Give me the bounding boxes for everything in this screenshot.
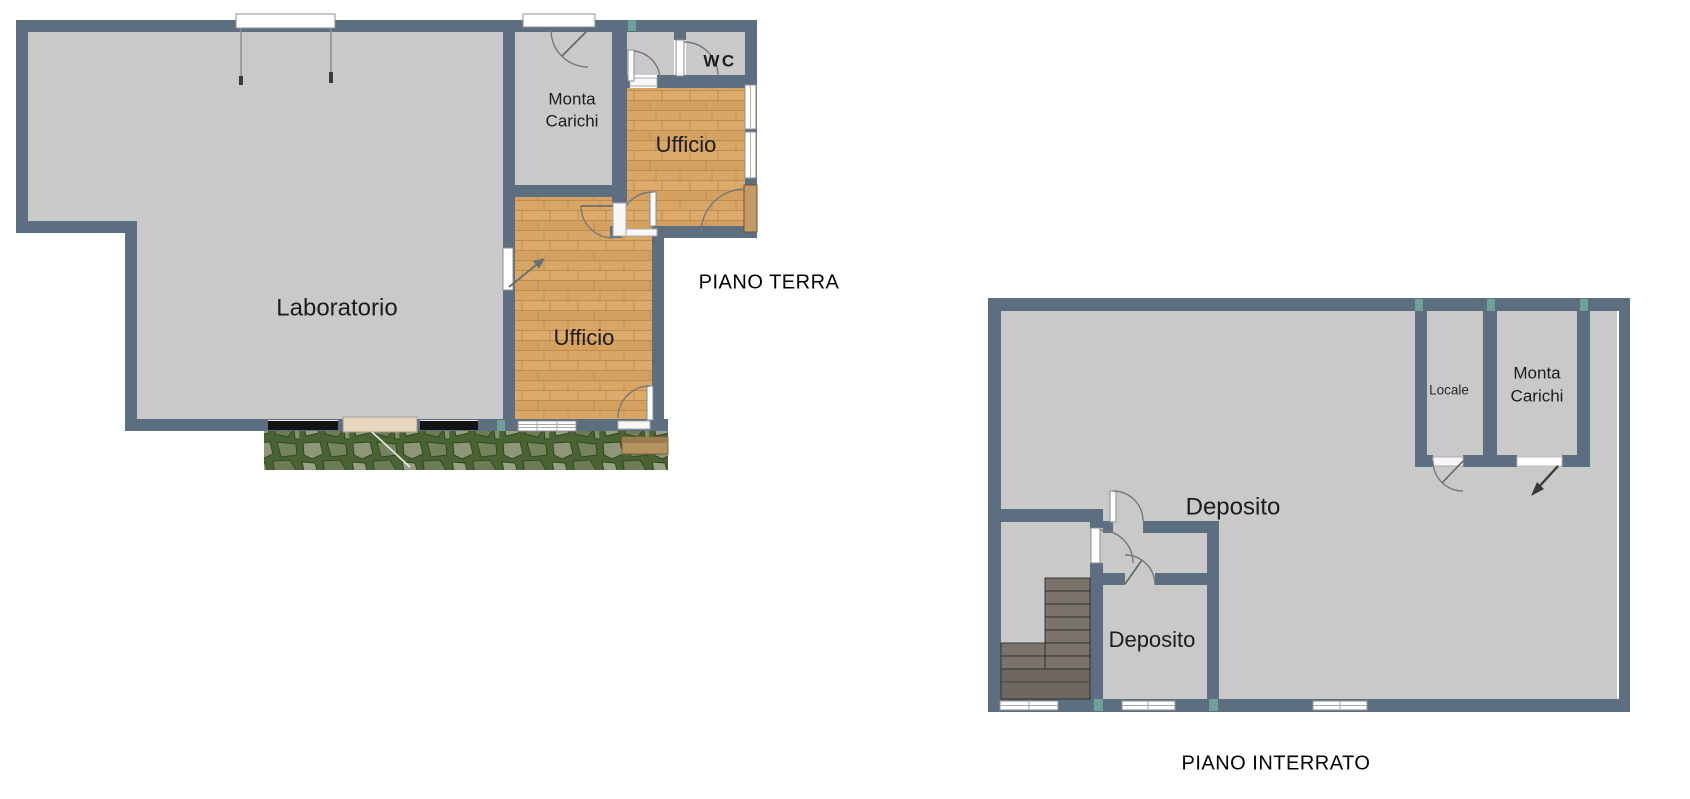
wall-segment: [988, 298, 1001, 712]
wall-segment: [1207, 521, 1219, 699]
wall-segment: [1090, 563, 1103, 699]
room-label-ufficio-upper: Ufficio: [656, 132, 717, 157]
wall-segment: [1562, 455, 1577, 467]
survey-tick: [1209, 699, 1218, 711]
survey-tick: [1415, 299, 1423, 311]
survey-tick: [1487, 299, 1495, 311]
room-label-monta-carichi-basement-line2: Carichi: [1511, 386, 1564, 405]
wall-segment: [612, 75, 630, 88]
room-label-monta-carichi-line1: Monta: [548, 89, 596, 108]
room-label-deposito-small: Deposito: [1109, 627, 1196, 652]
window-bottom-ufficio: [518, 421, 576, 431]
room-label-monta-carichi-line2: Carichi: [546, 111, 599, 130]
wall-segment: [1415, 455, 1433, 467]
wall-segment: [125, 233, 137, 431]
window-basement-left: [1000, 701, 1058, 710]
window-bottom-left: [268, 421, 338, 431]
room-label-locale: Locale: [1429, 383, 1469, 398]
wall-segment: [988, 298, 1630, 311]
caption-piano-terra: PIANO TERRA: [699, 271, 840, 293]
window-right-upper: [745, 85, 756, 129]
wall-segment: [503, 20, 515, 431]
wall-segment: [652, 226, 664, 431]
wall-segment: [1577, 311, 1590, 467]
room-label-wc: WC: [703, 51, 736, 70]
survey-tick: [497, 420, 505, 431]
wall-segment: [612, 20, 627, 203]
wall-segment: [1619, 298, 1630, 712]
room-label-ufficio-lower: Ufficio: [554, 325, 615, 350]
floorplan-drawing: Laboratorio Monta Carichi WC Ufficio Uff…: [0, 0, 1690, 799]
window-basement-right: [1313, 701, 1367, 710]
survey-tick: [628, 20, 636, 31]
wall-segment: [16, 20, 757, 32]
wall-segment: [674, 32, 686, 40]
wall-segment: [988, 699, 1630, 712]
room-label-laboratorio: Laboratorio: [276, 294, 397, 321]
wall-segment: [657, 75, 757, 88]
wall-segment: [1090, 509, 1103, 528]
survey-tick: [1094, 699, 1103, 711]
caption-piano-interrato: PIANO INTERRATO: [1181, 752, 1370, 774]
window-right-lower: [745, 132, 756, 178]
window-basement-mid: [1122, 701, 1175, 710]
survey-tick: [1580, 299, 1588, 311]
terrace-paving: [264, 431, 668, 470]
floorplan-canvas: Laboratorio Monta Carichi WC Ufficio Uff…: [0, 0, 1690, 799]
room-label-deposito-main: Deposito: [1186, 493, 1281, 520]
wall-segment: [1463, 455, 1517, 467]
wall-segment: [1483, 311, 1497, 455]
wall-segment: [16, 221, 137, 233]
wall-segment: [16, 20, 28, 233]
wall-segment: [503, 185, 627, 197]
wall-segment: [988, 509, 1090, 522]
window-bottom-mid: [420, 421, 478, 431]
wall-segment: [1103, 573, 1125, 585]
ground-floor-plan: Laboratorio Monta Carichi WC Ufficio Uff…: [16, 14, 840, 470]
terrace-door-sill: [622, 437, 668, 454]
basement-plan: Locale Monta Carichi Deposito Deposito P…: [988, 298, 1630, 774]
wall-segment: [1415, 311, 1427, 455]
wall-segment: [657, 226, 757, 238]
room-label-monta-carichi-basement-line1: Monta: [1513, 363, 1561, 382]
